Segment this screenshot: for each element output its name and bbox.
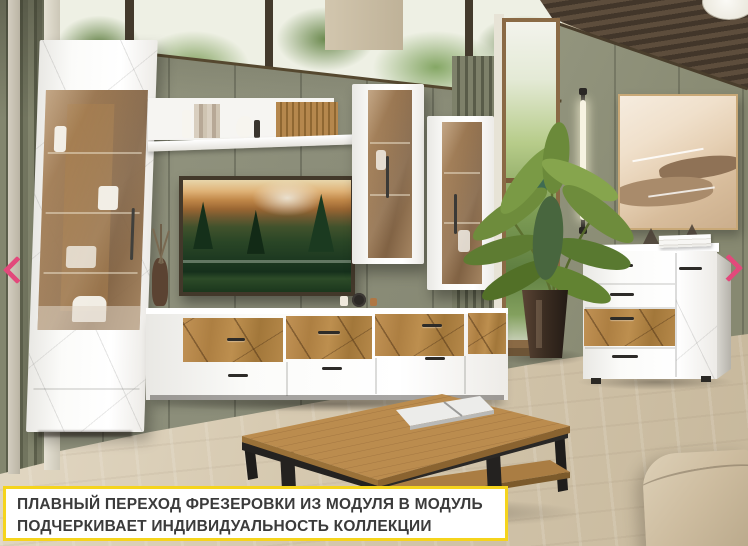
wall-gap-strip <box>8 0 20 474</box>
glass-shelf-line <box>44 272 138 274</box>
lamp-cap <box>579 88 587 95</box>
drawer-handle[interactable] <box>422 324 442 327</box>
drawer-handle[interactable] <box>228 374 248 377</box>
cabinet-feet <box>38 431 132 437</box>
glass-decor-box <box>98 186 119 210</box>
stand-oak-drawer[interactable] <box>286 316 372 359</box>
drawer-handle[interactable] <box>318 331 340 334</box>
chest-decor-books <box>659 234 711 248</box>
chest-foot <box>701 376 711 382</box>
ottoman-seam <box>641 457 748 511</box>
carousel-prev-button[interactable] <box>0 248 34 292</box>
shelf-decor-dark-figurine <box>254 120 260 138</box>
glass-shelf-line <box>370 142 410 144</box>
chest-door-milled[interactable] <box>676 251 717 379</box>
stand-decor-clock <box>352 293 366 307</box>
caption-banner: ПЛАВНЫЙ ПЕРЕХОД ФРЕЗЕРОВКИ ИЗ МОДУЛЯ В М… <box>3 486 508 541</box>
tv-artwork <box>179 176 355 296</box>
carousel-next-button[interactable] <box>712 246 746 290</box>
cabinet-door-handle[interactable] <box>386 156 389 198</box>
caption-line-2: ПОДЧЕРКИВАЕТ ИНДИВИДУАЛЬНОСТЬ КОЛЛЕКЦИИ <box>17 516 497 538</box>
stand-oak-drawer[interactable] <box>375 314 464 356</box>
painting-dune-mid <box>618 173 714 211</box>
palm-plant <box>452 118 622 378</box>
furniture-showroom-photo: ПЛАВНЫЙ ПЕРЕХОД ФРЕЗЕРОВКИ ИЗ МОДУЛЯ В М… <box>0 0 748 546</box>
glass-shelf-line <box>370 194 410 196</box>
glass-shelf-line <box>46 212 140 214</box>
artwork-tree <box>308 194 334 252</box>
stand-decor-vase <box>152 258 168 306</box>
glass-decor-books <box>66 246 97 268</box>
hanging-cabinet-left <box>352 84 424 264</box>
caption-line-1: ПЛАВНЫЙ ПЕРЕХОД ФРЕЗЕРОВКИ ИЗ МОДУЛЯ В М… <box>17 494 497 516</box>
ottoman <box>641 449 748 546</box>
drawer-seam <box>33 388 139 390</box>
drawer-handle[interactable] <box>227 338 245 341</box>
artwork-lake-highlight <box>183 260 351 263</box>
hanging-cabinet-glass[interactable] <box>368 90 412 258</box>
chest-foot <box>591 378 601 384</box>
shelf-decor-figurine <box>236 116 252 138</box>
glass-decor-vase <box>54 126 67 152</box>
shelf-decor-vase <box>182 110 191 138</box>
drawer-handle[interactable] <box>322 367 342 370</box>
stand-decor-candle <box>340 296 348 306</box>
dune-painting <box>618 94 738 230</box>
cabinet-wood-back <box>61 104 115 310</box>
door-handle[interactable] <box>679 267 702 270</box>
window-mullion <box>265 0 273 74</box>
glass-decor <box>376 150 386 170</box>
tall-display-cabinet <box>26 40 158 432</box>
artwork-tree <box>193 201 213 249</box>
artwork-tree <box>247 210 265 254</box>
wall-shelf <box>148 94 354 156</box>
wall-beam-column <box>325 0 403 50</box>
plant-pot <box>522 290 568 358</box>
glass-base-shelf <box>38 306 141 330</box>
stand-decor-glass <box>370 298 377 306</box>
chevron-left-icon <box>3 256 31 284</box>
shelf-decor-books <box>194 104 220 138</box>
chevron-right-icon <box>715 254 743 282</box>
glass-decor-vase <box>72 296 107 322</box>
glass-shelf-line <box>48 152 142 154</box>
drawer-handle[interactable] <box>425 357 445 360</box>
